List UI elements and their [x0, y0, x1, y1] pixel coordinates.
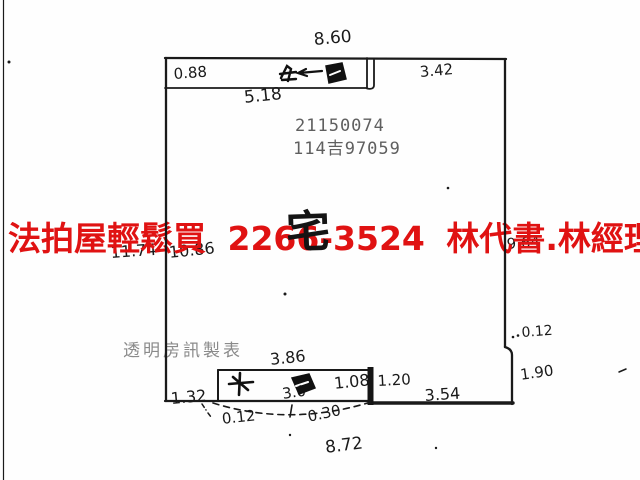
dim-right-lower: 1.90	[519, 361, 555, 383]
dim-top-window-width: 5.18	[243, 84, 283, 108]
dim-bottom-window-right: 1.08	[333, 370, 370, 393]
dim-bottom-window-span: 3.0	[281, 382, 307, 403]
dim-top-window-inset: 0.88	[173, 63, 208, 83]
dim-bottom-right: 3.54	[424, 384, 461, 405]
scanned-floorplan-page: 8.60 0.88 5.18 3.42 11.74 10.86 9.64 0.1…	[0, 0, 640, 480]
serial-number-line1: 21150074	[295, 116, 385, 136]
dim-bottom-step: 0.12	[221, 407, 256, 428]
stray-tick	[619, 369, 626, 372]
dim-bottom-window-width: 3.86	[269, 346, 306, 369]
top-wall	[165, 58, 506, 59]
right-wall-step	[505, 347, 512, 404]
dim-bottom-arc: 0.30	[306, 401, 342, 426]
dim-top-right: 3.42	[419, 60, 454, 81]
room-label-character: 宅	[285, 195, 331, 260]
maker-credit: 透明房訊製表	[123, 336, 243, 361]
top-window-marks-icon	[280, 63, 346, 83]
dim-right-step: 0.12	[521, 323, 553, 341]
dim-bottom-left: 1.32	[170, 386, 207, 408]
serial-number-line2: 114吉97059	[293, 134, 401, 159]
dim-top-overall: 8.60	[313, 27, 352, 50]
dim-bottom-overall: 8.72	[324, 433, 364, 457]
dim-bottom-gap: 1.20	[377, 370, 411, 390]
top-window-bracket	[367, 58, 374, 89]
